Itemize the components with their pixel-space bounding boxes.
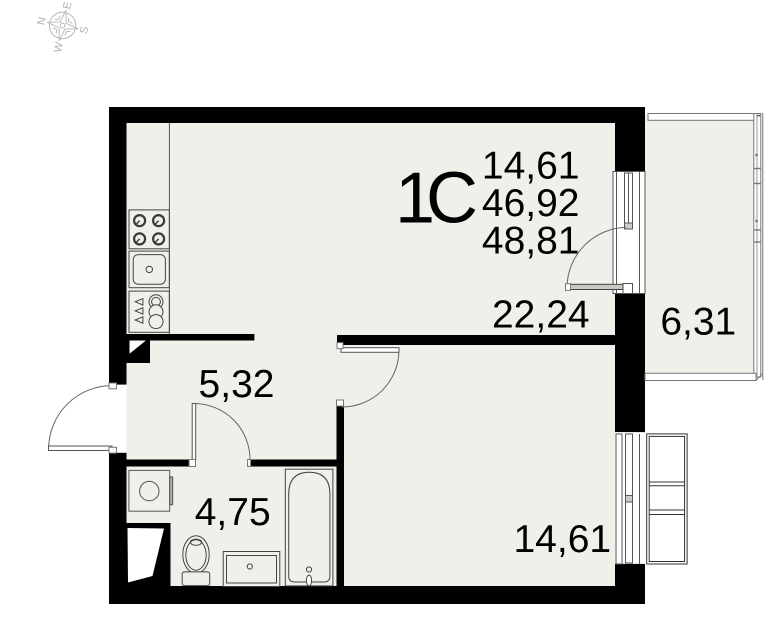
svg-text:5,32: 5,32 — [199, 363, 275, 406]
svg-text:14,61: 14,61 — [513, 518, 611, 561]
svg-text:48,81: 48,81 — [482, 220, 580, 263]
svg-text:E: E — [61, 1, 74, 11]
svg-text:22,24: 22,24 — [492, 294, 590, 337]
svg-text:4,75: 4,75 — [195, 491, 271, 534]
svg-text:S: S — [78, 25, 91, 35]
svg-text:W: W — [52, 40, 66, 53]
svg-text:N: N — [35, 16, 48, 26]
svg-text:1С: 1С — [395, 159, 476, 239]
svg-text:6,31: 6,31 — [660, 300, 736, 343]
